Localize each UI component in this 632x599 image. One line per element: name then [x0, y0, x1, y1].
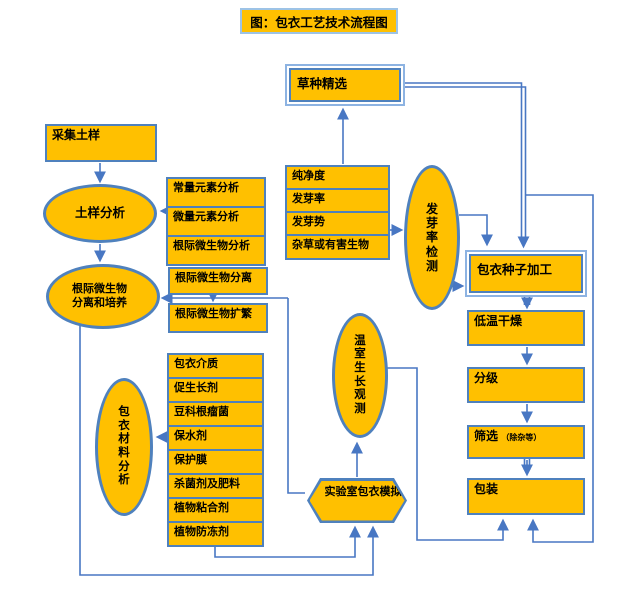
node-material-antifreeze: 植物防冻剂: [167, 521, 264, 547]
node-sieving: 筛选 （除杂等）: [467, 425, 585, 459]
node-grading: 分级: [467, 367, 585, 403]
node-low-temp-drying: 低温干燥: [467, 310, 585, 346]
node-coated-seed-processing: 包衣种子加工: [465, 250, 587, 297]
node-coated-seed-processing-label: 包衣种子加工: [469, 254, 583, 293]
node-seed-test-purity: 纯净度: [285, 165, 390, 190]
node-rhizo-isolation: 根际微生物分离: [168, 267, 268, 295]
flowchart-canvas: 图：包衣工艺技术流程图 草种精选 采集土样 土样分析 常量元素分析 微量元素分析…: [0, 0, 632, 599]
node-material-rhizobium: 豆科根瘤菌: [167, 401, 264, 427]
node-packing: 包装: [467, 478, 585, 515]
node-soil-test-trace: 微量元素分析: [166, 206, 266, 237]
node-germination-test: 发芽率检测: [404, 165, 460, 310]
flow-title: 图：包衣工艺技术流程图: [240, 8, 398, 34]
node-material-coating-medium: 包衣介质: [167, 353, 264, 379]
node-material-analysis: 包衣材料分析: [95, 378, 153, 516]
node-seed-test-germ-vigor: 发芽势: [285, 211, 390, 236]
node-seed-test-germ-rate: 发芽率: [285, 188, 390, 213]
node-material-growth-promoter: 促生长剂: [167, 377, 264, 403]
node-sieving-note: （除杂等）: [501, 433, 541, 442]
node-seed-selection: 草种精选: [285, 64, 405, 106]
node-material-water-retention: 保水剂: [167, 425, 264, 451]
node-greenhouse-observation: 温室生长观测: [332, 313, 388, 438]
node-lab-coating-simulation-label: 实验室包衣模拟: [310, 481, 405, 521]
node-sieving-label: 筛选: [474, 429, 498, 443]
node-lab-coating-simulation: 实验室包衣模拟: [307, 478, 407, 523]
node-rhizo-multiplication: 根际微生物扩繁: [168, 303, 268, 333]
node-soil-test-rhizo: 根际微生物分析: [166, 235, 266, 266]
node-greenhouse-observation-label: 温室生长观测: [353, 335, 367, 416]
node-material-analysis-label: 包衣材料分析: [117, 406, 131, 487]
node-rhizobia-culture-label: 根际微生物分离和培养: [72, 283, 134, 311]
node-rhizobia-culture: 根际微生物分离和培养: [46, 264, 160, 329]
node-soil-analysis-label: 土样分析: [75, 206, 125, 222]
node-seed-test-weeds: 杂草或有害生物: [285, 234, 390, 260]
node-soil-test-macro: 常量元素分析: [166, 177, 266, 208]
node-germination-test-label: 发芽率检测: [425, 202, 439, 273]
node-material-protective-film: 保护膜: [167, 449, 264, 475]
node-material-plant-binder: 植物粘合剂: [167, 497, 264, 523]
node-material-fungicide-fertilizer: 杀菌剂及肥料: [167, 473, 264, 499]
node-collect-soil: 采集土样: [45, 124, 157, 162]
node-seed-selection-label: 草种精选: [289, 68, 401, 102]
node-soil-analysis: 土样分析: [43, 184, 157, 243]
